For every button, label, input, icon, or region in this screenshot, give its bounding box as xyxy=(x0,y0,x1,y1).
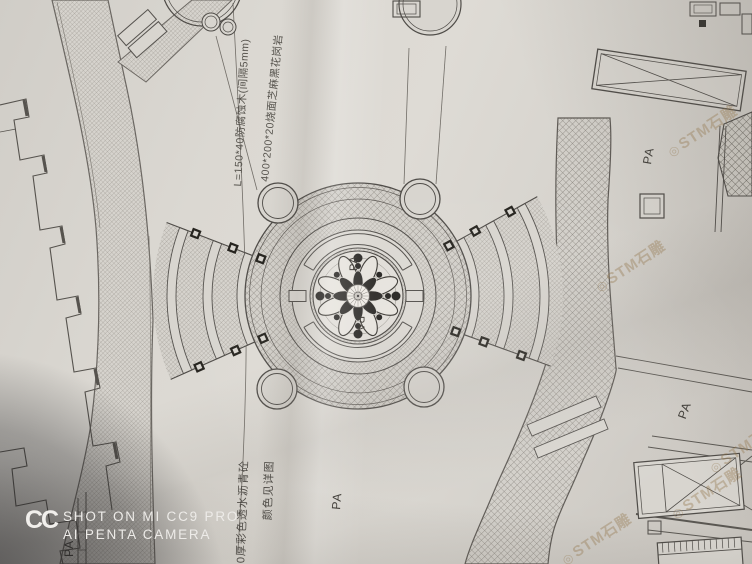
camera-watermark-line2: AI PENTA CAMERA xyxy=(63,527,211,542)
annotation-color-note: 颜色见详图 xyxy=(259,460,277,521)
left-fan-steps xyxy=(153,223,256,380)
plan-drawing xyxy=(0,0,752,564)
pa-label-bottom-center: PA xyxy=(329,492,344,510)
pa-label-plaza-north: PA xyxy=(348,255,360,271)
planter-x-rect-top xyxy=(592,49,746,111)
pa-label-bottom-left: PA xyxy=(62,540,76,557)
bench-tab-east xyxy=(406,291,423,302)
bench-tab-west xyxy=(289,291,306,302)
mi-cc-logo: CC xyxy=(25,506,57,535)
right-fan-steps xyxy=(456,197,563,367)
bottom-edge-building xyxy=(657,537,744,564)
blueprint-photo: L=150*40防腐蚀木(间隔5mm) 400*200*20烧面芝麻黑花岗岩 5… xyxy=(0,0,752,564)
pa-label-right-top: PA xyxy=(640,146,657,165)
camera-watermark-line1: SHOT ON MI CC9 PRO xyxy=(63,509,239,524)
pa-label-plaza-south: PA xyxy=(354,316,366,332)
